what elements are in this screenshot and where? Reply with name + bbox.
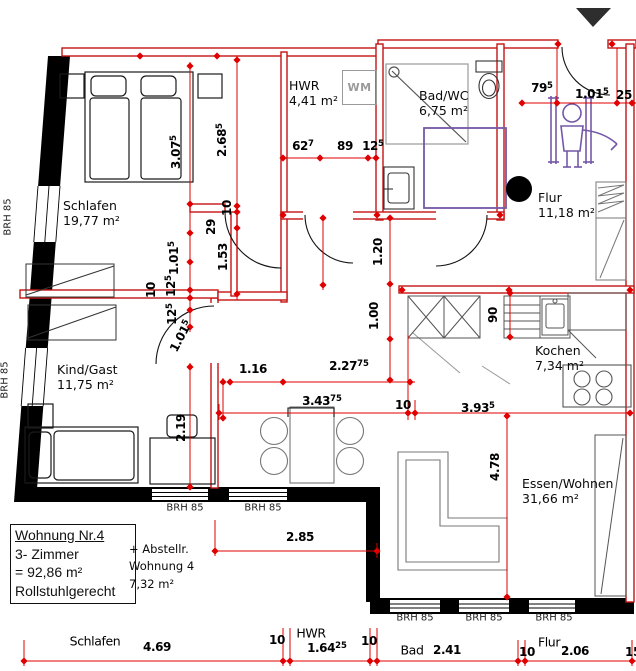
desk	[150, 415, 215, 484]
dimension-marker	[186, 62, 193, 69]
dimension-marker	[404, 409, 411, 416]
dimension-marker	[628, 657, 635, 664]
door-arc-kind	[156, 306, 214, 364]
dimension-marker	[366, 657, 373, 664]
door-arc-hwr	[305, 215, 353, 263]
dimension-marker	[613, 99, 620, 106]
dining-table	[261, 407, 364, 483]
kitchen-cabinets	[408, 296, 480, 338]
windows-bottom-right	[390, 600, 575, 612]
wheelchair-icon	[548, 96, 617, 167]
washbasin-icon	[384, 167, 414, 209]
dimension-marker	[364, 154, 371, 161]
dimension-marker	[514, 657, 521, 664]
dimension-marker	[411, 409, 418, 416]
dimension-marker	[226, 378, 233, 385]
dimension-marker	[20, 657, 27, 664]
open-door-leaves	[413, 333, 510, 384]
sofa	[398, 452, 507, 570]
floor-plan-canvas: Schlafen 19,77 m² HWR 4,41 m² Bad/WC 6,7…	[0, 0, 636, 671]
dimension-marker	[219, 378, 226, 385]
dimension-marker	[386, 280, 393, 287]
exterior-black-walls	[14, 56, 634, 614]
dimension-marker	[406, 378, 413, 385]
dimension-marker	[186, 258, 193, 265]
dimension-marker	[386, 376, 393, 383]
wardrobe-flur	[596, 182, 626, 280]
dimension-marker	[186, 229, 193, 236]
dimension-marker	[211, 547, 218, 554]
dimension-marker	[233, 56, 240, 63]
dimension-marker	[186, 323, 193, 330]
dimension-marker	[219, 414, 226, 421]
dimension-marker	[386, 335, 393, 342]
window-left-upper	[34, 186, 60, 242]
sideboard-essen	[595, 435, 626, 596]
dimension-markers	[20, 40, 635, 664]
double-bed	[60, 72, 222, 182]
dimension-marker	[506, 333, 513, 340]
red-walls	[20, 40, 636, 602]
dimension-marker	[553, 99, 560, 106]
door-arc-entry	[562, 47, 610, 95]
dimension-marker	[373, 657, 380, 664]
dimension-marker	[186, 363, 193, 370]
dimension-marker	[286, 657, 293, 664]
window-left-lower	[21, 348, 47, 406]
dimension-marker	[319, 281, 326, 288]
door-arc-bad	[436, 215, 487, 266]
dimension-marker	[279, 378, 286, 385]
kitchen-counter	[504, 293, 626, 358]
dimension-marker	[521, 657, 528, 664]
dimension-lines	[24, 48, 636, 666]
shower-icon	[386, 64, 468, 144]
north-arrow-icon	[576, 8, 611, 27]
dimension-marker	[279, 657, 286, 664]
dimension-marker	[316, 154, 323, 161]
stove-icon	[563, 365, 631, 407]
column-black	[506, 176, 532, 202]
dimension-marker	[518, 99, 525, 106]
accessible-turning-area	[424, 128, 506, 208]
